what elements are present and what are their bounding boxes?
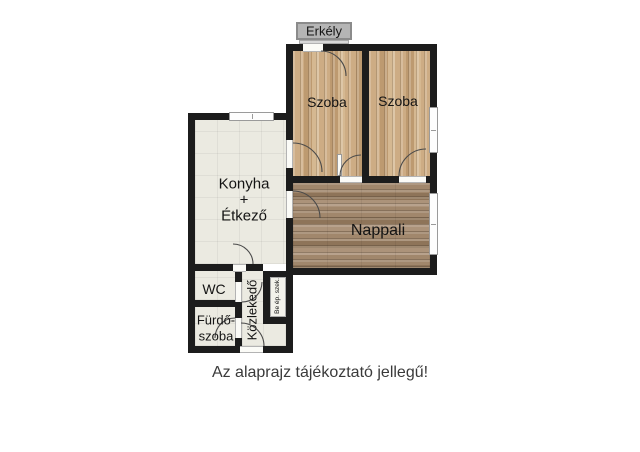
wall-closet (263, 317, 289, 324)
label-furdoszoba-line1: Fürdő- (197, 314, 235, 327)
wall (286, 218, 293, 268)
label-konyha-line3: Étkező (221, 209, 267, 224)
wall (235, 271, 242, 282)
wall (286, 120, 293, 140)
door-gap-entry (240, 346, 263, 353)
wall (246, 264, 263, 271)
wall-nappali-bottom (286, 268, 437, 275)
label-konyha-line1: Konyha (219, 177, 270, 192)
room-szoba-left-floor (293, 51, 362, 176)
wall (426, 176, 437, 183)
wall-outer-bottom (188, 346, 240, 353)
caption: Az alaprajz tájékoztató jellegű! (212, 364, 428, 382)
door-gap-szoba-right (399, 176, 426, 183)
window-tick (431, 130, 436, 131)
wall (274, 113, 293, 120)
door-gap-konyha-szoba (286, 140, 293, 168)
label-nappali: Nappali (351, 223, 405, 239)
wall (235, 338, 242, 346)
label-wc: WC (202, 282, 225, 296)
window-konyha (229, 112, 274, 121)
door-gap-furdoszoba (235, 318, 242, 338)
wall (286, 44, 293, 120)
door-leaf-szoba-left (337, 154, 342, 176)
wall-outer-bottom (263, 346, 293, 353)
window-tick (431, 224, 436, 225)
wall (323, 44, 437, 51)
wall (286, 176, 340, 183)
label-szoba-right: Szoba (378, 94, 418, 108)
wall (430, 183, 437, 193)
wall (235, 302, 242, 318)
wall-bedroom-divider (362, 51, 369, 176)
wall (286, 168, 293, 191)
window-tick (252, 114, 253, 119)
door-gap-konyha-nappali (286, 191, 293, 218)
door-gap-szoba-left (340, 176, 362, 183)
door-gap-konyha-kozlekedo (233, 264, 246, 272)
label-erkely: Erkély (306, 25, 342, 38)
label-szoba-left: Szoba (307, 95, 347, 109)
label-kozlekedo: Közlekedő (246, 280, 259, 341)
door-gap-wc (235, 282, 242, 302)
window-nappali (429, 193, 438, 255)
door-gap-balcony (303, 43, 323, 52)
label-konyha-line2: + (240, 193, 249, 208)
wall (195, 264, 233, 271)
label-furdoszoba-line2: szoba (199, 330, 234, 343)
window-szoba-right (429, 107, 438, 153)
wall (430, 44, 437, 107)
room-szoba-right-floor (369, 51, 430, 176)
wall (286, 275, 293, 353)
wall (362, 176, 399, 183)
label-beepitett-szekreny: Be ép. szek. (275, 278, 282, 314)
wall-outer-left (188, 113, 195, 353)
floor-plan: Erkély Szoba Szoba Konyha + Étkező Nappa… (0, 0, 640, 452)
